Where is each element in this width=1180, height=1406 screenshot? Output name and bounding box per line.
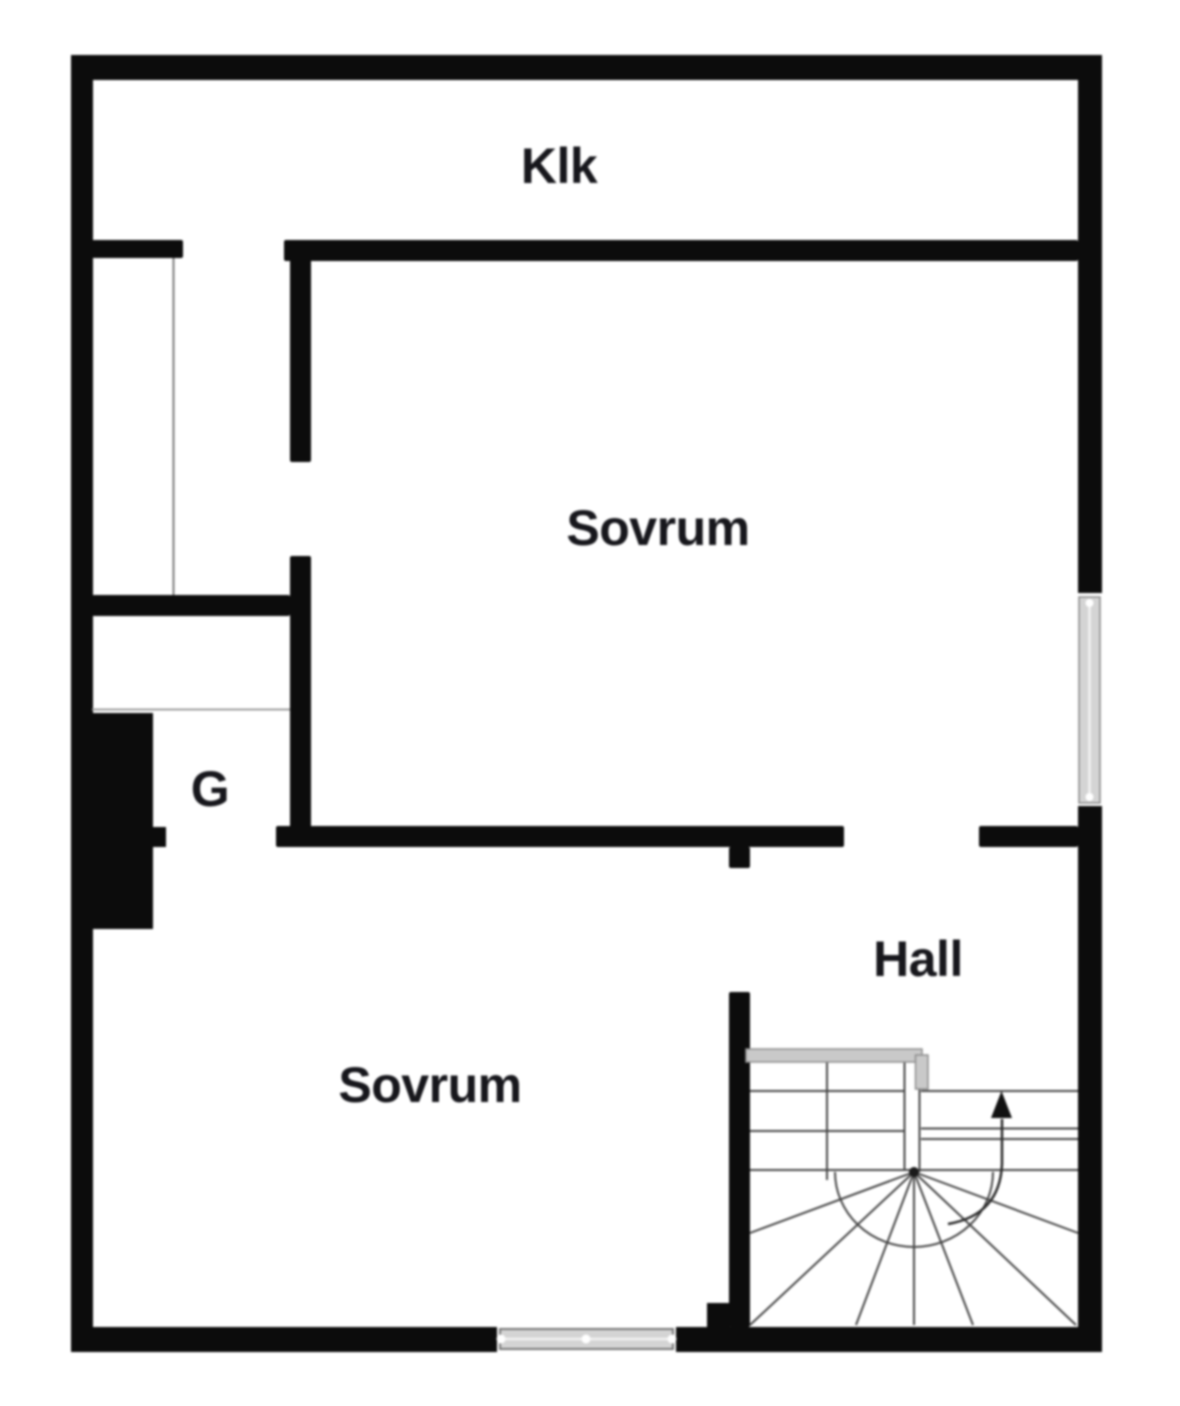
svg-text:Sovrum: Sovrum <box>338 1057 521 1113</box>
svg-text:Klk: Klk <box>521 138 598 194</box>
svg-text:G: G <box>191 761 229 817</box>
svg-text:Hall: Hall <box>873 931 963 987</box>
svg-text:Sovrum: Sovrum <box>566 500 749 556</box>
